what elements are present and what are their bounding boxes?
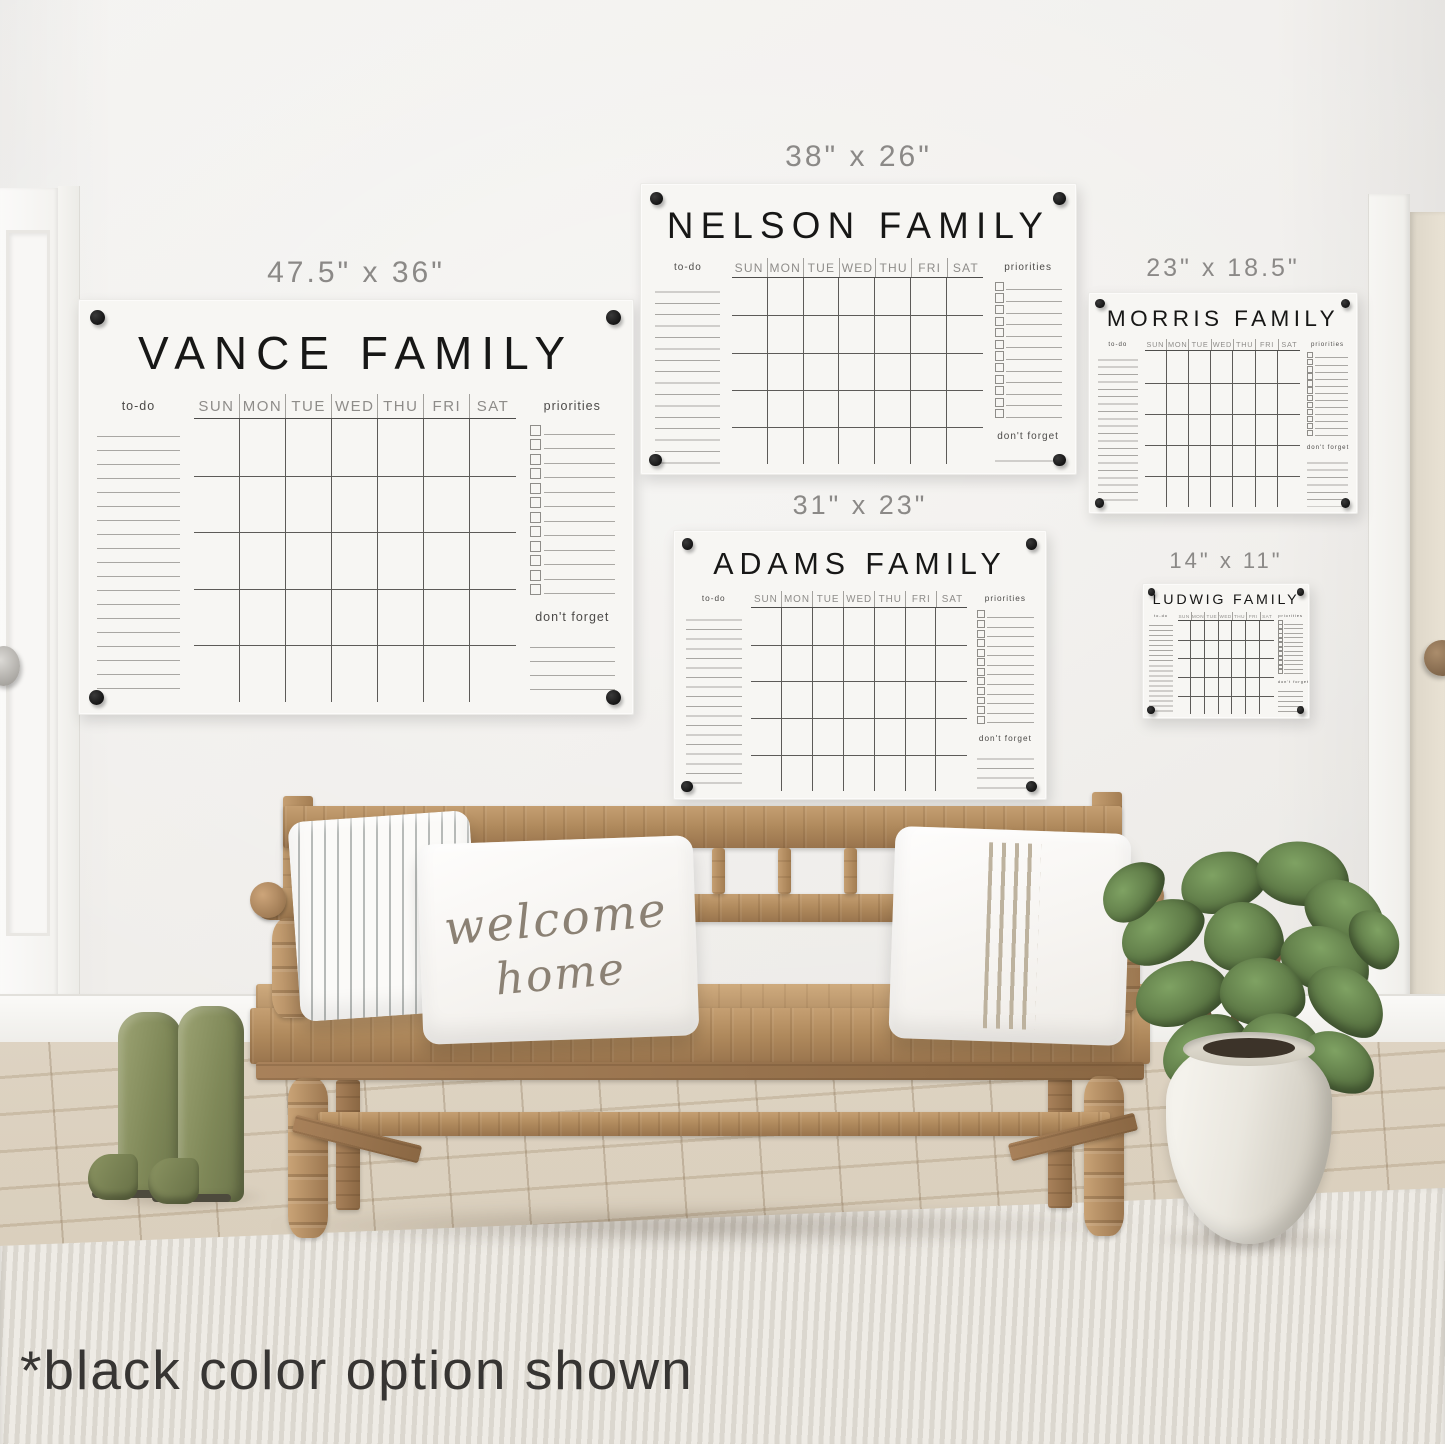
- board-body: to-do SUNMONTUEWEDTHUFRISAT priorities d…: [641, 247, 1076, 474]
- calendar-grid: [732, 278, 984, 464]
- priority-row: [977, 658, 1034, 668]
- calendar-cell: [906, 608, 937, 645]
- priority-row: [530, 582, 615, 597]
- calendar-cell: [911, 315, 947, 352]
- day-label: FRI: [423, 394, 469, 418]
- calendar-cell: [1211, 383, 1233, 414]
- calendar-cell: [1178, 696, 1192, 715]
- side-column: priorities don't forget: [530, 394, 615, 702]
- priority-row: [995, 292, 1062, 304]
- calendar-cell: [804, 353, 840, 390]
- priority-row: [1278, 670, 1304, 674]
- day-label: WED: [331, 394, 377, 418]
- priority-row: [530, 451, 615, 466]
- calendar-cell: [1205, 658, 1219, 677]
- board-group-vance: 47.5" x 36" VANCE FAMILY to-do SUNMONTUE…: [78, 256, 634, 715]
- calendar-cell: [286, 589, 332, 646]
- board-title: VANCE FAMILY: [79, 326, 633, 380]
- calendar-cell: [1232, 640, 1246, 659]
- priority-row: [977, 677, 1034, 687]
- day-label: TUE: [1188, 339, 1210, 351]
- calendar-cell: [813, 645, 844, 682]
- calendar-cell: [732, 278, 768, 315]
- day-label: THU: [875, 258, 911, 277]
- todo-column: to-do: [1149, 612, 1174, 714]
- priorities-label: priorities: [977, 591, 1034, 607]
- calendar-cell: [1178, 658, 1192, 677]
- calendar-cell: [1256, 351, 1278, 382]
- calendar-board-nelson: NELSON FAMILY to-do SUNMONTUEWEDTHUFRISA…: [640, 183, 1077, 475]
- standoff-dot: [1147, 706, 1154, 713]
- calendar-board-vance: VANCE FAMILY to-do SUNMONTUEWEDTHUFRISAT…: [78, 299, 634, 715]
- calendar-cell: [1256, 383, 1278, 414]
- priority-row: [530, 567, 615, 582]
- calendar-cell: [1233, 445, 1255, 476]
- priority-row: [530, 422, 615, 437]
- calendar-cell: [1145, 414, 1167, 445]
- calendar-cell: [875, 645, 906, 682]
- calendar-cell: [751, 608, 782, 645]
- calendar-cell: [947, 353, 983, 390]
- calendar-cell: [1232, 621, 1246, 640]
- standoff-dot: [1148, 588, 1155, 595]
- board-body: to-do SUNMONTUEWEDTHUFRISAT priorities d…: [1089, 332, 1357, 513]
- todo-label: to-do: [97, 394, 180, 418]
- calendar-cell: [947, 278, 983, 315]
- calendar-cell: [732, 315, 768, 352]
- priority-row: [530, 553, 615, 568]
- calendar-cell: [470, 476, 516, 533]
- side-column: priorities don't forget: [977, 591, 1034, 791]
- priority-row: [995, 327, 1062, 339]
- priority-row: [995, 396, 1062, 408]
- calendar-cell: [1205, 640, 1219, 659]
- calendar-cell: [839, 278, 875, 315]
- standoff-dot: [650, 192, 663, 205]
- day-label: SAT: [947, 258, 983, 277]
- calendar-cell: [424, 476, 470, 533]
- priority-row: [995, 304, 1062, 316]
- bench-floor-shadow: [258, 1204, 1158, 1248]
- calendar-cell: [1219, 621, 1233, 640]
- day-label: FRI: [911, 258, 947, 277]
- day-label: WED: [839, 258, 875, 277]
- todo-lines: [97, 423, 180, 702]
- calendar-cell: [332, 476, 378, 533]
- calendar-cell: [424, 419, 470, 476]
- calendar-cell: [844, 608, 875, 645]
- side-column: priorities don't forget: [995, 258, 1062, 464]
- priority-row: [530, 437, 615, 452]
- calendar-cell: [424, 532, 470, 589]
- calendar-cell: [1256, 414, 1278, 445]
- todo-label: to-do: [655, 258, 720, 277]
- left-door-frame: [58, 186, 80, 1042]
- dont-forget-label: don't forget: [995, 427, 1062, 446]
- calendar-cell: [839, 427, 875, 464]
- dont-forget-label: don't forget: [977, 731, 1034, 747]
- day-label: TUE: [803, 258, 839, 277]
- calendar-cell: [286, 532, 332, 589]
- dont-forget-label: don't forget: [530, 605, 615, 629]
- calendar-cell: [378, 419, 424, 476]
- calendar-cell: [240, 476, 286, 533]
- priority-row: [977, 667, 1034, 677]
- calendar-cell: [1145, 351, 1167, 382]
- calendar-cell: [1211, 351, 1233, 382]
- calendar-cell: [1189, 476, 1211, 507]
- calendar-cell: [936, 645, 967, 682]
- welcome-home-pillow: welcome home: [417, 835, 700, 1045]
- calendar-cell: [240, 419, 286, 476]
- footnote-text: *black color option shown: [20, 1338, 694, 1402]
- calendar-cell: [906, 681, 937, 718]
- standoff-dot: [89, 690, 104, 705]
- calendar-cell: [936, 755, 967, 792]
- todo-label: to-do: [1149, 612, 1174, 619]
- calendar-cell: [470, 532, 516, 589]
- size-label: 14" x 11": [1142, 548, 1310, 574]
- priority-row: [530, 480, 615, 495]
- priority-row: [977, 705, 1034, 715]
- calendar-cell: [768, 278, 804, 315]
- calendar-cell: [875, 278, 911, 315]
- calendar-cell: [194, 532, 240, 589]
- calendar-cell: [768, 315, 804, 352]
- calendar-cell: [194, 476, 240, 533]
- calendar-cell: [875, 390, 911, 427]
- calendar-cell: [839, 390, 875, 427]
- priority-row: [977, 648, 1034, 658]
- calendar-board-adams: ADAMS FAMILY to-do SUNMONTUEWEDTHUFRISAT…: [673, 530, 1047, 800]
- standoff-dot: [1341, 498, 1350, 507]
- calendar-cell: [844, 681, 875, 718]
- board-body: to-do SUNMONTUEWEDTHUFRISAT priorities d…: [79, 380, 633, 714]
- standoff-dot: [1297, 706, 1304, 713]
- calendar-cell: [947, 390, 983, 427]
- calendar-cell: [751, 755, 782, 792]
- calendar-cell: [240, 589, 286, 646]
- calendar-cell: [378, 645, 424, 702]
- calendar-cell: [1178, 621, 1192, 640]
- calendar-cell: [1256, 445, 1278, 476]
- calendar-cell: [936, 608, 967, 645]
- day-label: MON: [239, 394, 285, 418]
- calendar-cell: [1211, 414, 1233, 445]
- day-label: FRI: [1246, 612, 1260, 619]
- calendar-cell: [804, 427, 840, 464]
- todo-column: to-do: [655, 258, 720, 464]
- priority-row: [1307, 430, 1348, 437]
- calendar-cell: [1278, 445, 1300, 476]
- priority-row: [530, 509, 615, 524]
- dont-forget-lines: [995, 450, 1062, 465]
- calendar-cell: [768, 353, 804, 390]
- calendar-cell: [1211, 476, 1233, 507]
- calendar-cell: [1189, 383, 1211, 414]
- calendar-cell: [1178, 677, 1192, 696]
- bench-spindle: [712, 848, 725, 894]
- calendar-board-morris: MORRIS FAMILY to-do SUNMONTUEWEDTHUFRISA…: [1088, 292, 1358, 514]
- bench-spindle: [844, 848, 857, 894]
- board-title: LUDWIG FAMILY: [1143, 592, 1309, 608]
- priority-row: [977, 619, 1034, 629]
- bench-arm-scroll-left: [250, 882, 286, 918]
- calendar-cell: [1145, 445, 1167, 476]
- calendar-cell: [911, 278, 947, 315]
- calendar-cell: [1219, 640, 1233, 659]
- calendar-grid: [1145, 351, 1300, 507]
- calendar-cell: [844, 755, 875, 792]
- size-label: 23" x 18.5": [1088, 254, 1358, 283]
- calendar-column: SUNMONTUEWEDTHUFRISAT: [751, 591, 968, 791]
- calendar-cell: [1189, 445, 1211, 476]
- day-header-row: SUNMONTUEWEDTHUFRISAT: [194, 394, 516, 419]
- calendar-cell: [911, 353, 947, 390]
- calendar-cell: [1246, 640, 1260, 659]
- calendar-cell: [1211, 445, 1233, 476]
- board-body: to-do SUNMONTUEWEDTHUFRISAT priorities d…: [1143, 608, 1309, 718]
- calendar-cell: [1278, 414, 1300, 445]
- calendar-cell: [240, 532, 286, 589]
- calendar-cell: [1256, 476, 1278, 507]
- calendar-cell: [1232, 696, 1246, 715]
- calendar-cell: [906, 645, 937, 682]
- calendar-cell: [911, 427, 947, 464]
- calendar-cell: [1189, 414, 1211, 445]
- todo-lines: [686, 611, 742, 792]
- calendar-cell: [936, 718, 967, 755]
- priority-row: [977, 686, 1034, 696]
- size-label: 47.5" x 36": [78, 256, 634, 290]
- calendar-cell: [1189, 351, 1211, 382]
- pillow-script-text: welcome home: [416, 880, 700, 1012]
- dont-forget-lines: [530, 634, 615, 702]
- calendar-cell: [1145, 383, 1167, 414]
- day-label: SUN: [732, 258, 767, 277]
- side-column: priorities don't forget: [1278, 612, 1304, 714]
- todo-column: to-do: [686, 591, 742, 791]
- size-label: 38" x 26": [640, 140, 1077, 174]
- calendar-cell: [906, 718, 937, 755]
- calendar-cell: [732, 427, 768, 464]
- day-label: WED: [843, 591, 874, 607]
- board-group-morris: 23" x 18.5" MORRIS FAMILY to-do SUNMONTU…: [1088, 254, 1358, 514]
- calendar-cell: [1233, 351, 1255, 382]
- board-title: NELSON FAMILY: [641, 205, 1076, 247]
- dont-forget-label: don't forget: [1278, 678, 1304, 685]
- calendar-cell: [906, 755, 937, 792]
- calendar-cell: [286, 645, 332, 702]
- calendar-cell: [875, 427, 911, 464]
- calendar-column: SUNMONTUEWEDTHUFRISAT: [1145, 339, 1300, 508]
- calendar-cell: [332, 589, 378, 646]
- calendar-cell: [875, 353, 911, 390]
- calendar-cell: [1205, 621, 1219, 640]
- calendar-cell: [732, 390, 768, 427]
- calendar-column: SUNMONTUEWEDTHUFRISAT: [194, 394, 516, 702]
- calendar-cell: [813, 718, 844, 755]
- calendar-cell: [1205, 677, 1219, 696]
- todo-column: to-do: [1098, 339, 1138, 508]
- board-body: to-do SUNMONTUEWEDTHUFRISAT priorities d…: [674, 582, 1046, 799]
- calendar-cell: [1167, 445, 1189, 476]
- calendar-cell: [470, 589, 516, 646]
- calendar-cell: [1278, 351, 1300, 382]
- calendar-grid: [1178, 621, 1274, 714]
- standoff-dot: [1095, 498, 1104, 507]
- todo-lines: [1098, 353, 1138, 507]
- calendar-cell: [936, 681, 967, 718]
- left-door-panel: [6, 230, 50, 936]
- rain-boot-right: [178, 1006, 244, 1202]
- calendar-cell: [1167, 414, 1189, 445]
- todo-lines: [1149, 621, 1174, 714]
- calendar-cell: [813, 755, 844, 792]
- day-label: TUE: [1204, 612, 1218, 619]
- board-group-adams: 31" x 23" ADAMS FAMILY to-do SUNMONTUEWE…: [673, 490, 1047, 800]
- calendar-cell: [1145, 476, 1167, 507]
- standoff-dot: [1026, 538, 1037, 549]
- day-label: SAT: [1278, 339, 1300, 351]
- calendar-cell: [844, 718, 875, 755]
- day-label: FRI: [1255, 339, 1277, 351]
- calendar-cell: [194, 645, 240, 702]
- todo-label: to-do: [1098, 339, 1138, 351]
- standoff-dot: [1095, 299, 1104, 308]
- calendar-grid: [194, 419, 516, 702]
- priority-row: [995, 408, 1062, 420]
- calendar-board-ludwig: LUDWIG FAMILY to-do SUNMONTUEWEDTHUFRISA…: [1142, 583, 1310, 719]
- calendar-cell: [751, 718, 782, 755]
- calendar-cell: [286, 476, 332, 533]
- calendar-cell: [813, 681, 844, 718]
- calendar-cell: [839, 315, 875, 352]
- priorities-label: priorities: [995, 258, 1062, 277]
- day-label: MON: [767, 258, 803, 277]
- calendar-cell: [782, 608, 813, 645]
- calendar-cell: [1232, 677, 1246, 696]
- calendar-cell: [1191, 677, 1205, 696]
- priorities-label: priorities: [530, 394, 615, 418]
- day-header-row: SUNMONTUEWEDTHUFRISAT: [751, 591, 968, 608]
- bench-front-leg-left: [288, 1078, 328, 1238]
- bench-stretcher: [318, 1112, 1110, 1136]
- day-header-row: SUNMONTUEWEDTHUFRISAT: [1178, 612, 1274, 620]
- priority-row: [977, 639, 1034, 649]
- board-group-ludwig: 14" x 11" LUDWIG FAMILY to-do SUNMONTUEW…: [1142, 548, 1310, 719]
- day-header-row: SUNMONTUEWEDTHUFRISAT: [732, 258, 984, 278]
- standoff-dot: [90, 310, 105, 325]
- priority-row: [530, 495, 615, 510]
- standoff-dot: [606, 310, 621, 325]
- day-label: SAT: [936, 591, 967, 607]
- priorities-list: [977, 610, 1034, 725]
- day-label: THU: [1232, 612, 1246, 619]
- priorities-list: [1278, 621, 1304, 675]
- calendar-cell: [751, 645, 782, 682]
- day-header-row: SUNMONTUEWEDTHUFRISAT: [1145, 339, 1300, 352]
- bench-spindle: [778, 848, 791, 894]
- calendar-cell: [1246, 696, 1260, 715]
- calendar-cell: [839, 353, 875, 390]
- calendar-cell: [378, 476, 424, 533]
- day-label: TUE: [812, 591, 843, 607]
- calendar-cell: [1233, 476, 1255, 507]
- priority-row: [995, 362, 1062, 374]
- calendar-cell: [240, 645, 286, 702]
- day-label: MON: [781, 591, 812, 607]
- entryway-scene: 47.5" x 36" VANCE FAMILY to-do SUNMONTUE…: [0, 0, 1445, 1444]
- calendar-cell: [875, 608, 906, 645]
- calendar-cell: [813, 608, 844, 645]
- board-title: ADAMS FAMILY: [674, 548, 1046, 582]
- calendar-cell: [911, 390, 947, 427]
- dont-forget-label: don't forget: [1307, 442, 1348, 454]
- calendar-cell: [1260, 640, 1274, 659]
- todo-column: to-do: [97, 394, 180, 702]
- calendar-cell: [1191, 640, 1205, 659]
- calendar-cell: [875, 315, 911, 352]
- todo-lines: [655, 281, 720, 464]
- calendar-cell: [804, 315, 840, 352]
- calendar-cell: [1233, 383, 1255, 414]
- calendar-cell: [424, 589, 470, 646]
- calendar-grid: [751, 608, 968, 791]
- calendar-cell: [424, 645, 470, 702]
- day-label: WED: [1211, 339, 1233, 351]
- calendar-cell: [751, 681, 782, 718]
- priorities-label: priorities: [1278, 612, 1304, 619]
- calendar-cell: [804, 278, 840, 315]
- priorities-list: [995, 280, 1062, 419]
- priority-row: [977, 696, 1034, 706]
- priorities-list: [1307, 352, 1348, 437]
- calendar-cell: [1191, 621, 1205, 640]
- size-label: 31" x 23": [673, 490, 1047, 521]
- day-label: MON: [1191, 612, 1205, 619]
- calendar-cell: [1278, 476, 1300, 507]
- calendar-cell: [782, 718, 813, 755]
- calendar-cell: [947, 427, 983, 464]
- calendar-cell: [194, 419, 240, 476]
- calendar-cell: [947, 315, 983, 352]
- calendar-cell: [1167, 383, 1189, 414]
- calendar-cell: [378, 589, 424, 646]
- standoff-dot: [1053, 192, 1066, 205]
- calendar-cell: [768, 390, 804, 427]
- calendar-cell: [1219, 696, 1233, 715]
- priority-row: [530, 524, 615, 539]
- calendar-cell: [1178, 640, 1192, 659]
- calendar-cell: [875, 681, 906, 718]
- calendar-cell: [470, 419, 516, 476]
- bench-seat-lip: [256, 1062, 1144, 1080]
- grain-stripe-pillow: [888, 826, 1131, 1046]
- standoff-dot: [606, 690, 621, 705]
- standoff-dot: [1297, 588, 1304, 595]
- day-label: SAT: [1260, 612, 1274, 619]
- standoff-dot: [681, 781, 692, 792]
- calendar-cell: [1233, 414, 1255, 445]
- calendar-cell: [1278, 383, 1300, 414]
- calendar-cell: [768, 427, 804, 464]
- day-label: SUN: [1145, 339, 1166, 351]
- day-label: FRI: [905, 591, 936, 607]
- calendar-cell: [470, 645, 516, 702]
- priority-row: [977, 610, 1034, 620]
- calendar-cell: [732, 353, 768, 390]
